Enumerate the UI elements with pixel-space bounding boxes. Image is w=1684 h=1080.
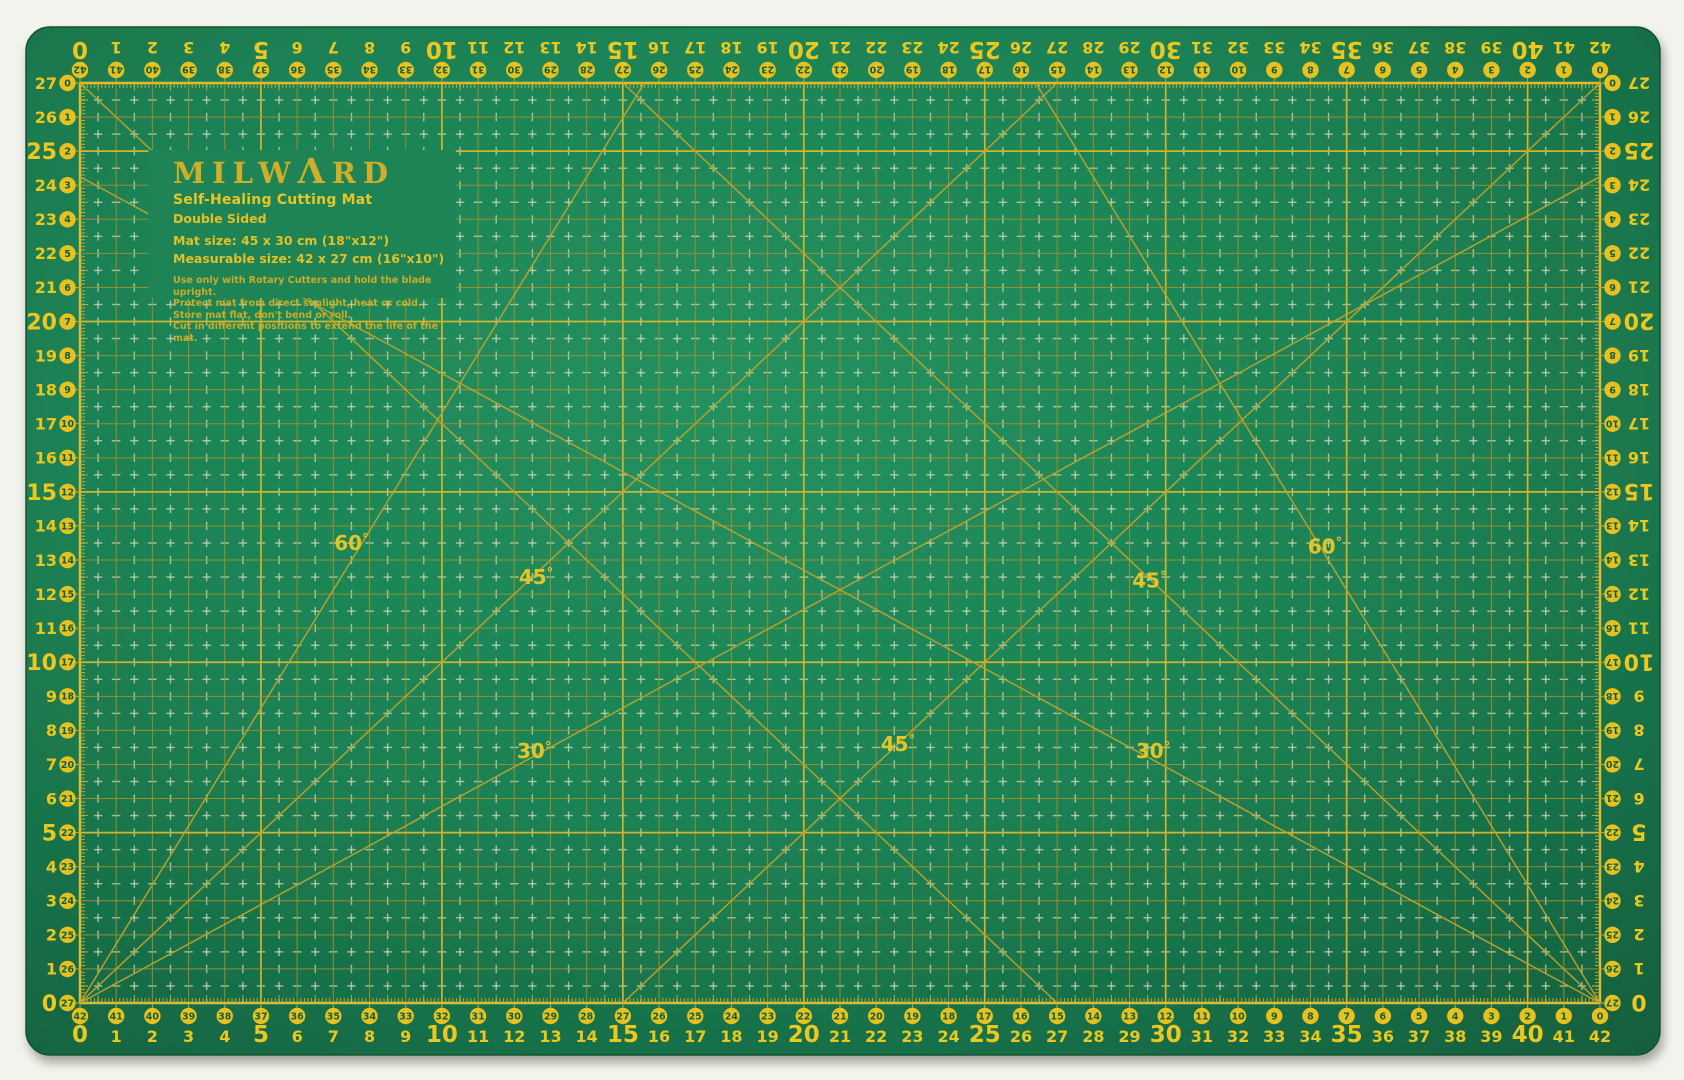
- svg-text:9: 9: [1271, 1011, 1278, 1022]
- svg-text:18: 18: [1606, 690, 1620, 701]
- svg-text:6: 6: [64, 283, 71, 294]
- svg-text:25: 25: [1624, 137, 1655, 162]
- svg-text:27: 27: [616, 64, 629, 75]
- svg-text:27: 27: [1046, 38, 1068, 57]
- svg-text:3: 3: [183, 38, 194, 57]
- svg-text:22: 22: [797, 64, 810, 75]
- svg-text:39: 39: [182, 1011, 195, 1022]
- svg-text:5: 5: [1416, 1011, 1423, 1022]
- svg-text:38: 38: [1444, 38, 1466, 57]
- svg-text:38: 38: [218, 1011, 232, 1022]
- svg-text:27: 27: [1606, 997, 1619, 1008]
- svg-text:32: 32: [435, 1011, 448, 1022]
- svg-text:5: 5: [253, 1022, 269, 1048]
- svg-text:28: 28: [580, 1011, 594, 1022]
- svg-text:1: 1: [1560, 64, 1567, 75]
- svg-text:8: 8: [64, 351, 71, 362]
- svg-text:9: 9: [400, 38, 411, 57]
- svg-text:23: 23: [761, 64, 774, 75]
- svg-text:6: 6: [1609, 281, 1616, 292]
- svg-text:14: 14: [1087, 1011, 1101, 1022]
- svg-text:4: 4: [46, 857, 57, 876]
- svg-text:11: 11: [467, 38, 489, 57]
- label-measurable-size: Measurable size: 42 x 27 cm (16"x10"): [173, 251, 456, 266]
- svg-text:26: 26: [35, 108, 57, 127]
- svg-text:16: 16: [1014, 1011, 1028, 1022]
- svg-text:7: 7: [328, 1027, 339, 1046]
- svg-text:20: 20: [61, 760, 75, 771]
- bottom-ruler: 0421412403394385376367358349331032113112…: [72, 1008, 1611, 1048]
- svg-text:8: 8: [364, 1027, 375, 1046]
- svg-text:24: 24: [61, 896, 75, 907]
- svg-text:13: 13: [1123, 1011, 1136, 1022]
- svg-text:12: 12: [35, 585, 57, 604]
- svg-text:20: 20: [26, 310, 57, 335]
- svg-text:28: 28: [1082, 1027, 1104, 1046]
- svg-text:0: 0: [1609, 77, 1616, 88]
- svg-text:24: 24: [937, 38, 959, 57]
- svg-text:7: 7: [46, 755, 57, 774]
- svg-text:6: 6: [1379, 64, 1386, 75]
- svg-text:33: 33: [1263, 1027, 1285, 1046]
- svg-text:20: 20: [1624, 308, 1655, 333]
- svg-text:15: 15: [26, 481, 57, 506]
- svg-text:36: 36: [291, 1011, 305, 1022]
- svg-text:5: 5: [42, 822, 57, 847]
- svg-text:4: 4: [219, 38, 230, 57]
- label-care-notes: Use only with Rotary Cutters and hold th…: [173, 275, 456, 344]
- svg-text:13: 13: [1123, 64, 1136, 75]
- svg-text:9: 9: [1609, 383, 1616, 394]
- svg-text:8: 8: [1307, 64, 1314, 75]
- svg-text:24: 24: [1606, 894, 1620, 905]
- svg-text:25: 25: [26, 140, 57, 165]
- svg-text:19: 19: [906, 64, 919, 75]
- brand-logo: MILWΛRD: [173, 156, 456, 189]
- svg-text:4: 4: [64, 215, 71, 226]
- svg-text:42: 42: [1589, 1027, 1611, 1046]
- svg-text:22: 22: [797, 1011, 810, 1022]
- svg-text:21: 21: [1628, 278, 1650, 297]
- svg-text:4: 4: [219, 1027, 230, 1046]
- svg-text:2: 2: [1524, 64, 1531, 75]
- svg-text:26: 26: [652, 64, 666, 75]
- svg-text:27: 27: [616, 1011, 629, 1022]
- svg-text:27: 27: [61, 998, 74, 1009]
- mat-label-block: MILWΛRD Self-Healing Cutting Mat Double …: [148, 150, 456, 298]
- svg-text:5: 5: [253, 36, 269, 62]
- svg-text:22: 22: [865, 1027, 887, 1046]
- svg-text:5: 5: [64, 249, 71, 260]
- svg-text:10: 10: [426, 1022, 458, 1048]
- svg-text:4: 4: [1609, 213, 1616, 224]
- svg-text:21: 21: [829, 38, 851, 57]
- svg-text:39: 39: [1480, 38, 1502, 57]
- svg-text:12: 12: [1628, 584, 1650, 603]
- svg-text:26: 26: [652, 1011, 666, 1022]
- svg-text:8: 8: [1609, 349, 1616, 360]
- svg-text:10: 10: [1231, 64, 1245, 75]
- svg-text:37: 37: [254, 64, 267, 75]
- svg-text:0: 0: [64, 78, 71, 89]
- svg-text:19: 19: [35, 346, 57, 365]
- svg-text:17: 17: [1628, 414, 1650, 433]
- svg-text:20: 20: [869, 64, 883, 75]
- svg-text:15: 15: [61, 590, 74, 601]
- svg-text:41: 41: [110, 1011, 123, 1022]
- svg-text:20: 20: [788, 36, 820, 62]
- svg-text:2: 2: [1609, 145, 1616, 156]
- svg-text:15: 15: [1051, 64, 1064, 75]
- svg-text:38: 38: [1444, 1027, 1466, 1046]
- svg-text:21: 21: [833, 1011, 846, 1022]
- svg-text:7: 7: [64, 317, 71, 328]
- svg-text:18: 18: [942, 64, 956, 75]
- svg-text:10: 10: [1231, 1011, 1245, 1022]
- svg-text:10: 10: [26, 651, 57, 676]
- svg-text:26: 26: [61, 964, 75, 975]
- svg-text:10: 10: [1624, 648, 1655, 673]
- svg-text:14: 14: [576, 1027, 598, 1046]
- svg-text:8: 8: [1633, 721, 1644, 740]
- care-note: Use only with Rotary Cutters and hold th…: [173, 275, 456, 298]
- svg-text:0: 0: [72, 1022, 88, 1048]
- svg-text:32: 32: [1227, 1027, 1249, 1046]
- svg-text:11: 11: [35, 619, 57, 638]
- svg-text:1: 1: [46, 960, 57, 979]
- svg-text:1: 1: [64, 112, 71, 123]
- svg-text:30: 30: [1150, 1022, 1182, 1048]
- svg-text:9: 9: [64, 385, 71, 396]
- svg-text:1: 1: [1560, 1011, 1567, 1022]
- svg-text:26: 26: [1010, 38, 1032, 57]
- svg-text:31: 31: [471, 64, 484, 75]
- svg-text:33: 33: [1263, 38, 1285, 57]
- svg-text:31: 31: [471, 1011, 484, 1022]
- svg-text:12: 12: [1606, 485, 1619, 496]
- care-note: Protect mat from direct sunlight, heat o…: [173, 298, 456, 310]
- svg-text:8: 8: [1307, 1011, 1314, 1022]
- svg-text:25: 25: [969, 36, 1001, 62]
- svg-text:32: 32: [435, 64, 448, 75]
- svg-text:41: 41: [110, 64, 123, 75]
- svg-text:23: 23: [35, 210, 57, 229]
- svg-text:5: 5: [1631, 819, 1646, 844]
- svg-text:1: 1: [111, 38, 122, 57]
- svg-text:19: 19: [61, 726, 74, 737]
- svg-text:34: 34: [1299, 38, 1321, 57]
- svg-text:6: 6: [1380, 1011, 1387, 1022]
- svg-text:40: 40: [1512, 1022, 1544, 1048]
- svg-text:18: 18: [942, 1011, 956, 1022]
- svg-text:36: 36: [290, 64, 304, 75]
- svg-text:17: 17: [684, 1027, 706, 1046]
- svg-text:22: 22: [865, 38, 887, 57]
- svg-text:26: 26: [1628, 107, 1650, 126]
- svg-text:33: 33: [399, 1011, 412, 1022]
- svg-text:17: 17: [684, 38, 706, 57]
- svg-text:40: 40: [145, 64, 159, 75]
- svg-text:16: 16: [648, 38, 670, 57]
- svg-text:7: 7: [1633, 755, 1644, 774]
- svg-text:21: 21: [1606, 792, 1619, 803]
- svg-text:7: 7: [1609, 315, 1616, 326]
- svg-text:11: 11: [1628, 618, 1650, 637]
- svg-text:2: 2: [1633, 925, 1644, 944]
- svg-text:18: 18: [1628, 380, 1650, 399]
- svg-text:27: 27: [1046, 1027, 1068, 1046]
- svg-text:15: 15: [1606, 588, 1619, 599]
- svg-text:19: 19: [756, 1027, 778, 1046]
- svg-text:22: 22: [1606, 826, 1619, 837]
- svg-text:34: 34: [1299, 1027, 1321, 1046]
- svg-text:31: 31: [1191, 38, 1213, 57]
- svg-text:9: 9: [46, 687, 57, 706]
- svg-text:11: 11: [61, 453, 74, 464]
- svg-text:0: 0: [1596, 64, 1603, 75]
- svg-text:39: 39: [182, 64, 195, 75]
- svg-text:15: 15: [1051, 1011, 1064, 1022]
- svg-text:11: 11: [1195, 1011, 1208, 1022]
- svg-text:2: 2: [64, 147, 71, 158]
- svg-text:40: 40: [1512, 36, 1544, 62]
- svg-text:25: 25: [61, 930, 74, 941]
- svg-text:3: 3: [64, 181, 71, 192]
- svg-text:21: 21: [833, 64, 846, 75]
- svg-text:21: 21: [829, 1027, 851, 1046]
- svg-text:19: 19: [906, 1011, 919, 1022]
- svg-text:28: 28: [580, 64, 594, 75]
- svg-text:37: 37: [1408, 1027, 1430, 1046]
- svg-text:14: 14: [1628, 516, 1650, 535]
- label-title: Self-Healing Cutting Mat: [173, 192, 456, 208]
- svg-text:38: 38: [218, 64, 232, 75]
- svg-text:23: 23: [1628, 210, 1650, 229]
- svg-text:29: 29: [1118, 38, 1140, 57]
- svg-text:30: 30: [1150, 36, 1182, 62]
- svg-text:16: 16: [1628, 448, 1650, 467]
- svg-text:39: 39: [1480, 1027, 1502, 1046]
- svg-text:16: 16: [1014, 64, 1028, 75]
- svg-text:40: 40: [146, 1011, 160, 1022]
- svg-text:17: 17: [1606, 656, 1619, 667]
- svg-text:14: 14: [1086, 64, 1100, 75]
- svg-text:11: 11: [467, 1027, 489, 1046]
- svg-text:13: 13: [35, 551, 57, 570]
- svg-text:26: 26: [1606, 963, 1620, 974]
- svg-text:5: 5: [1609, 247, 1616, 258]
- svg-text:42: 42: [73, 1011, 86, 1022]
- svg-text:1: 1: [1609, 111, 1616, 122]
- svg-text:11: 11: [1606, 451, 1619, 462]
- svg-text:19: 19: [1606, 724, 1619, 735]
- svg-text:30: 30: [508, 1011, 522, 1022]
- svg-text:12: 12: [1159, 1011, 1172, 1022]
- svg-text:21: 21: [35, 278, 57, 297]
- svg-text:2: 2: [147, 38, 158, 57]
- svg-text:15: 15: [1624, 478, 1655, 503]
- svg-text:10: 10: [426, 36, 458, 62]
- svg-text:2: 2: [46, 926, 57, 945]
- svg-text:25: 25: [689, 1011, 702, 1022]
- svg-text:1: 1: [111, 1027, 122, 1046]
- svg-text:13: 13: [539, 1027, 561, 1046]
- label-mat-size: Mat size: 45 x 30 cm (18"x12"): [173, 233, 456, 248]
- svg-text:3: 3: [183, 1027, 194, 1046]
- svg-text:35: 35: [1331, 1022, 1363, 1048]
- svg-text:3: 3: [1633, 891, 1644, 910]
- cutting-mat-photo: 60°45°30°45°45°60°30°0421412403394385376…: [0, 0, 1684, 1080]
- svg-text:9: 9: [400, 1027, 411, 1046]
- svg-text:8: 8: [46, 721, 57, 740]
- label-subtitle: Double Sided: [173, 211, 456, 226]
- svg-text:14: 14: [1606, 554, 1620, 565]
- svg-text:23: 23: [901, 1027, 923, 1046]
- svg-text:1: 1: [1633, 959, 1644, 978]
- svg-text:5: 5: [1416, 64, 1423, 75]
- svg-text:6: 6: [292, 1027, 303, 1046]
- svg-text:22: 22: [61, 828, 74, 839]
- svg-text:10: 10: [61, 419, 75, 430]
- svg-text:19: 19: [1628, 346, 1650, 365]
- svg-text:4: 4: [1452, 64, 1459, 75]
- svg-text:27: 27: [1628, 73, 1650, 92]
- svg-text:30: 30: [507, 64, 521, 75]
- svg-text:37: 37: [254, 1011, 267, 1022]
- svg-text:10: 10: [1606, 417, 1620, 428]
- svg-text:17: 17: [35, 415, 57, 434]
- svg-text:3: 3: [1488, 1011, 1495, 1022]
- svg-text:13: 13: [61, 521, 74, 532]
- svg-text:18: 18: [720, 38, 742, 57]
- svg-text:36: 36: [1372, 38, 1394, 57]
- top-ruler: 0421412403394385376367358349331032113112…: [72, 36, 1611, 78]
- svg-text:20: 20: [870, 1011, 884, 1022]
- svg-text:8: 8: [364, 38, 375, 57]
- svg-text:6: 6: [292, 38, 303, 57]
- svg-text:0: 0: [72, 36, 88, 62]
- svg-text:24: 24: [937, 1027, 959, 1046]
- svg-text:18: 18: [61, 692, 75, 703]
- svg-text:3: 3: [46, 892, 57, 911]
- svg-text:4: 4: [1452, 1011, 1459, 1022]
- svg-text:42: 42: [1589, 38, 1611, 57]
- svg-text:17: 17: [978, 1011, 991, 1022]
- svg-text:22: 22: [35, 244, 57, 263]
- svg-text:34: 34: [363, 64, 377, 75]
- svg-text:3: 3: [1488, 64, 1495, 75]
- svg-text:21: 21: [61, 794, 74, 805]
- svg-text:15: 15: [607, 1022, 639, 1048]
- svg-text:11: 11: [1195, 64, 1208, 75]
- svg-text:31: 31: [1191, 1027, 1213, 1046]
- svg-text:24: 24: [725, 1011, 739, 1022]
- svg-text:26: 26: [1010, 1027, 1032, 1046]
- svg-text:12: 12: [1159, 64, 1172, 75]
- svg-text:25: 25: [969, 1022, 1001, 1048]
- svg-text:35: 35: [327, 64, 340, 75]
- svg-text:14: 14: [61, 555, 75, 566]
- svg-text:7: 7: [1343, 1011, 1350, 1022]
- svg-text:41: 41: [1553, 38, 1575, 57]
- svg-text:23: 23: [761, 1011, 774, 1022]
- svg-text:37: 37: [1408, 38, 1430, 57]
- svg-text:15: 15: [607, 36, 639, 62]
- svg-text:0: 0: [1597, 1011, 1604, 1022]
- svg-text:23: 23: [901, 38, 923, 57]
- svg-text:23: 23: [61, 862, 74, 873]
- svg-text:12: 12: [503, 1027, 525, 1046]
- svg-text:14: 14: [35, 517, 57, 536]
- svg-text:25: 25: [1606, 928, 1619, 939]
- svg-text:41: 41: [1553, 1027, 1575, 1046]
- svg-text:7: 7: [1343, 64, 1350, 75]
- svg-text:36: 36: [1372, 1027, 1394, 1046]
- svg-text:16: 16: [648, 1027, 670, 1046]
- svg-text:13: 13: [539, 38, 561, 57]
- care-note: Cut in different positions to extend the…: [173, 321, 456, 344]
- svg-text:20: 20: [1606, 758, 1620, 769]
- svg-text:16: 16: [1606, 622, 1620, 633]
- svg-text:32: 32: [1227, 38, 1249, 57]
- svg-text:0: 0: [1631, 989, 1646, 1014]
- svg-text:24: 24: [724, 64, 738, 75]
- svg-text:29: 29: [1118, 1027, 1140, 1046]
- svg-text:9: 9: [1271, 64, 1278, 75]
- svg-text:17: 17: [978, 64, 991, 75]
- svg-text:28: 28: [1082, 38, 1104, 57]
- svg-text:6: 6: [1633, 789, 1644, 808]
- svg-text:7: 7: [328, 38, 339, 57]
- svg-text:17: 17: [61, 658, 74, 669]
- svg-text:27: 27: [35, 74, 57, 93]
- svg-text:9: 9: [1633, 687, 1644, 706]
- svg-text:20: 20: [788, 1022, 820, 1048]
- svg-text:24: 24: [1628, 175, 1650, 194]
- svg-text:12: 12: [61, 487, 74, 498]
- svg-text:16: 16: [35, 449, 57, 468]
- svg-text:12: 12: [503, 38, 525, 57]
- svg-text:33: 33: [399, 64, 412, 75]
- svg-text:34: 34: [363, 1011, 377, 1022]
- svg-text:24: 24: [35, 176, 57, 195]
- svg-text:2: 2: [1524, 1011, 1531, 1022]
- svg-text:22: 22: [1628, 244, 1650, 263]
- svg-text:35: 35: [327, 1011, 340, 1022]
- svg-text:16: 16: [61, 624, 75, 635]
- svg-text:29: 29: [544, 1011, 557, 1022]
- svg-text:18: 18: [720, 1027, 742, 1046]
- svg-text:4: 4: [1633, 857, 1644, 876]
- svg-text:19: 19: [756, 38, 778, 57]
- svg-text:25: 25: [689, 64, 702, 75]
- care-note: Store mat flat, don't bend or roll.: [173, 310, 456, 322]
- svg-text:6: 6: [46, 789, 57, 808]
- svg-text:35: 35: [1331, 36, 1363, 62]
- svg-text:13: 13: [1606, 520, 1619, 531]
- svg-text:2: 2: [147, 1027, 158, 1046]
- svg-text:42: 42: [73, 64, 86, 75]
- svg-text:23: 23: [1606, 860, 1619, 871]
- svg-text:29: 29: [544, 64, 557, 75]
- svg-text:14: 14: [576, 38, 598, 57]
- svg-text:18: 18: [35, 380, 57, 399]
- svg-text:0: 0: [42, 992, 57, 1017]
- svg-text:3: 3: [1609, 179, 1616, 190]
- svg-text:13: 13: [1628, 550, 1650, 569]
